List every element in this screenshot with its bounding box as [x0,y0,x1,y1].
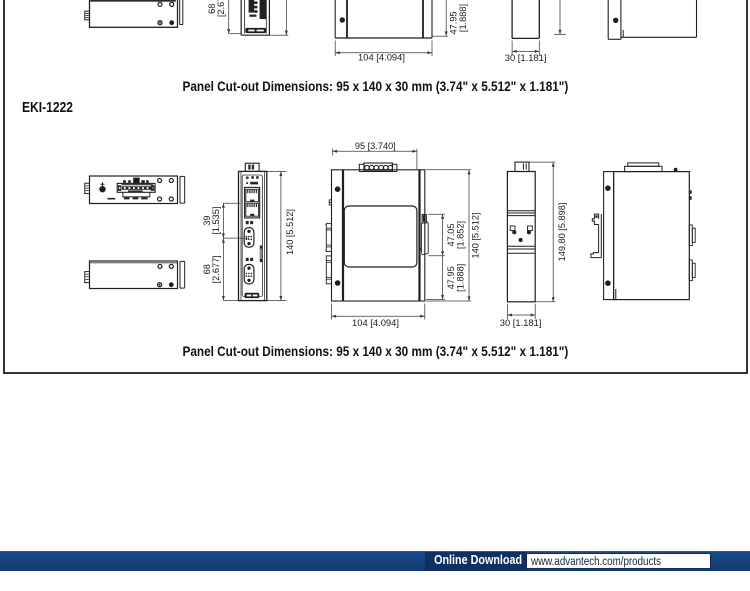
svg-text:104 [4.094]: 104 [4.094] [358,52,405,63]
svg-text:[1.888]: [1.888] [458,4,468,32]
svg-text:[2.677]: [2.677] [211,255,221,283]
svg-text:104 [4.094]: 104 [4.094] [352,317,399,328]
svg-text:30 [1.181]: 30 [1.181] [505,52,547,63]
svg-text:95 [3.740]: 95 [3.740] [355,141,396,151]
svg-text:140 [5.512]: 140 [5.512] [285,209,295,255]
svg-text:140 [5.512]: 140 [5.512] [470,213,480,259]
svg-text:[1.535]: [1.535] [211,207,221,235]
svg-text:30 [1.181]: 30 [1.181] [500,317,542,328]
svg-text:[1.888]: [1.888] [455,264,465,292]
svg-text:[2.677]: [2.677] [216,0,226,17]
svg-text:149.80 [5.898]: 149.80 [5.898] [557,203,567,262]
svg-text:[1.852]: [1.852] [455,221,465,249]
